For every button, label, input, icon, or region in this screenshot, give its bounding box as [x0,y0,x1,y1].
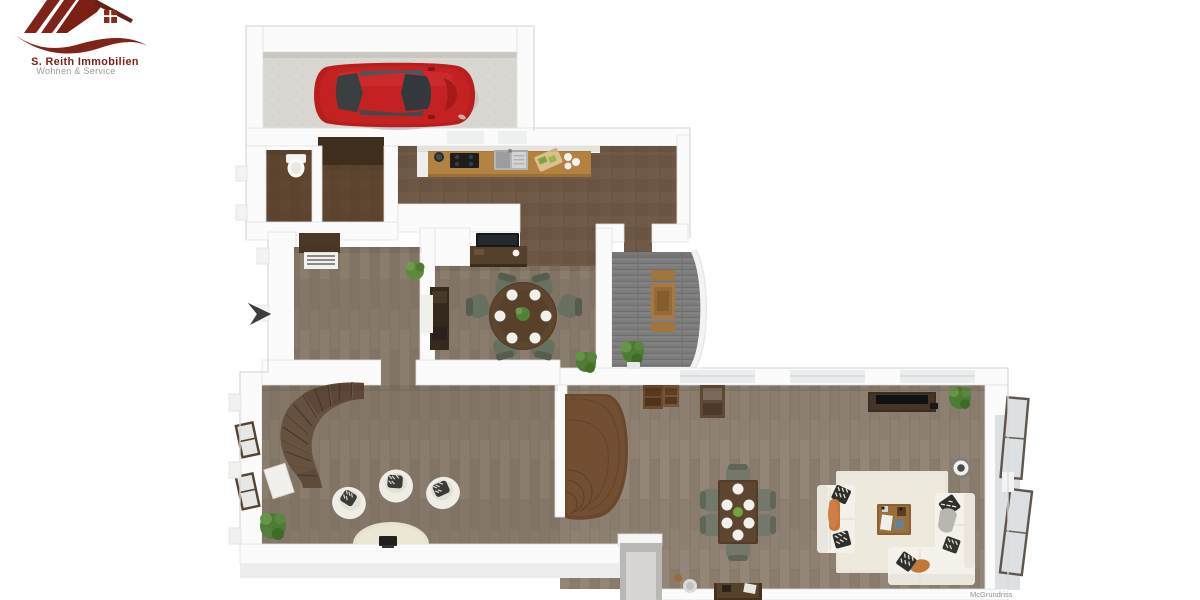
svg-text:Wohnen & Service: Wohnen & Service [36,66,115,76]
svg-text:McGrundriss: McGrundriss [970,590,1013,599]
